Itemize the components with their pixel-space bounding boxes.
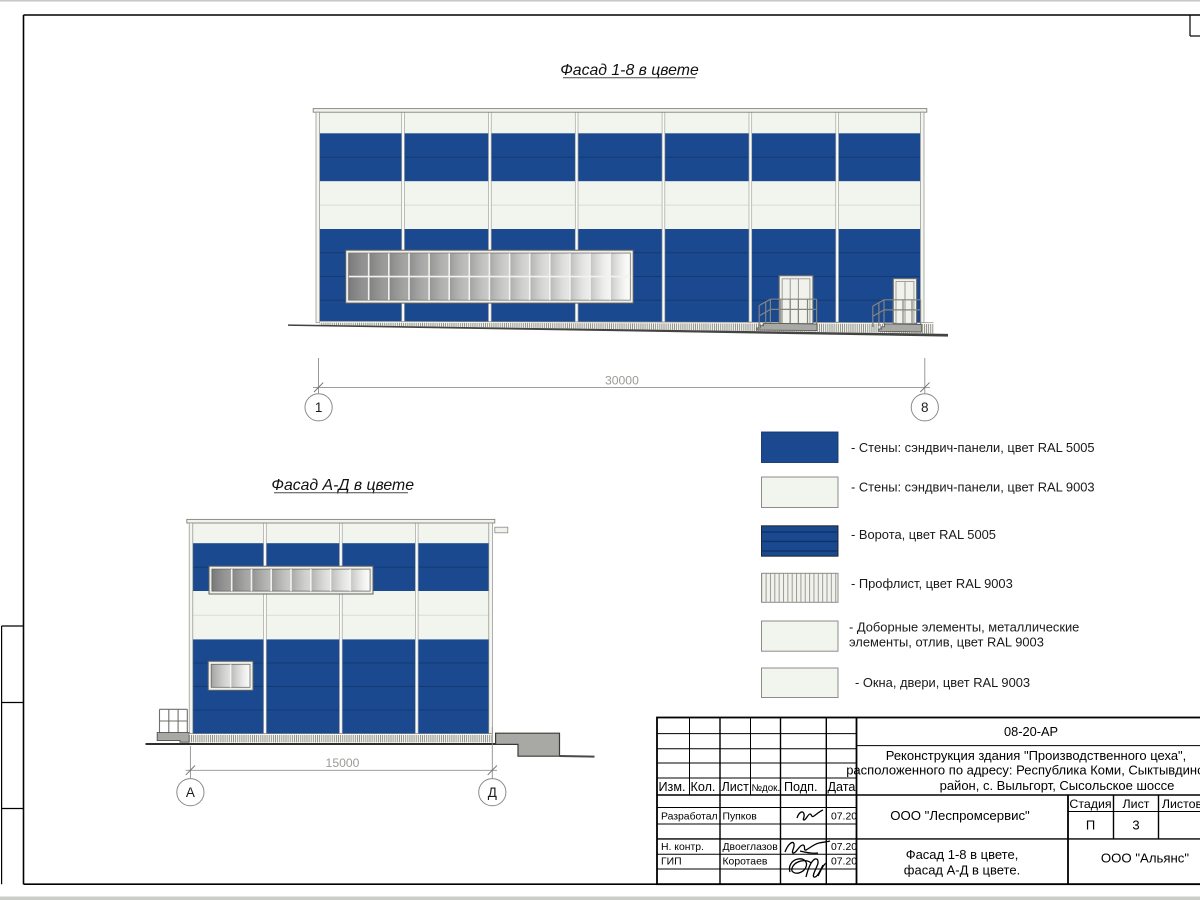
svg-text:Коротаев: Коротаев xyxy=(723,857,768,868)
svg-text:Пупков: Пупков xyxy=(723,811,758,822)
svg-text:30000: 30000 xyxy=(605,373,639,387)
svg-text:07.20: 07.20 xyxy=(831,857,857,868)
svg-text:Н. контр.: Н. контр. xyxy=(661,842,704,853)
svg-text:Кол.: Кол. xyxy=(691,780,716,794)
svg-text:- Окна, двери, цвет RAL 9003: - Окна, двери, цвет RAL 9003 xyxy=(855,675,1030,690)
svg-text:ООО "Леспромсервис": ООО "Леспромсервис" xyxy=(890,808,1030,823)
svg-text:Листов: Листов xyxy=(1162,797,1200,811)
svg-text:8: 8 xyxy=(921,400,929,415)
svg-text:07.20: 07.20 xyxy=(831,842,857,853)
svg-text:Фасад 1-8 в цвете: Фасад 1-8 в цвете xyxy=(560,62,699,79)
svg-text:ГИП: ГИП xyxy=(661,857,682,868)
svg-text:Изм.: Изм. xyxy=(659,780,686,794)
svg-text:- Профлист, цвет RAL 9003: - Профлист, цвет RAL 9003 xyxy=(851,576,1013,591)
svg-text:район, с. Выльгорт, Сысольское: район, с. Выльгорт, Сысольское шоссе xyxy=(940,778,1175,793)
svg-text:Д: Д xyxy=(488,785,497,800)
svg-text:- Стены: сэндвич-панели, цвет: - Стены: сэндвич-панели, цвет RAL 9003 xyxy=(851,480,1095,495)
svg-text:ООО "Альянс": ООО "Альянс" xyxy=(1101,851,1189,866)
svg-text:- Стены: сэндвич-панели, цвет: - Стены: сэндвич-панели, цвет RAL 5005 xyxy=(851,440,1095,455)
svg-text:элементы, отлив, цвет RAL 9003: элементы, отлив, цвет RAL 9003 xyxy=(849,635,1044,650)
svg-text:15000: 15000 xyxy=(326,756,360,770)
svg-text:1: 1 xyxy=(315,400,323,415)
svg-text:Стадия: Стадия xyxy=(1069,797,1111,811)
svg-text:фасад А-Д в цвете.: фасад А-Д в цвете. xyxy=(904,863,1020,878)
svg-text:А: А xyxy=(186,785,195,800)
svg-text:Фасад 1-8 в цвете,: Фасад 1-8 в цвете, xyxy=(906,847,1019,862)
svg-text:Разработал: Разработал xyxy=(661,810,718,822)
svg-text:Фасад А-Д в цвете: Фасад А-Д в цвете xyxy=(271,477,414,494)
svg-text:П: П xyxy=(1086,818,1095,833)
svg-text:- Доборные элементы, металличе: - Доборные элементы, металлические xyxy=(849,620,1079,635)
svg-text:- Ворота, цвет RAL 5005: - Ворота, цвет RAL 5005 xyxy=(851,527,996,542)
svg-text:Дата: Дата xyxy=(828,780,856,794)
svg-text:08-20-АР: 08-20-АР xyxy=(1004,724,1058,739)
svg-text:№док.: №док. xyxy=(752,783,781,794)
svg-text:Лист: Лист xyxy=(1123,797,1150,811)
svg-text:07.20: 07.20 xyxy=(831,811,857,822)
svg-text:3: 3 xyxy=(1132,818,1139,833)
svg-text:расположенного по адресу: Респ: расположенного по адресу: Республика Ком… xyxy=(846,763,1200,778)
svg-text:Двоеглазов: Двоеглазов xyxy=(723,842,779,853)
svg-text:Реконструкция здания "Производ: Реконструкция здания "Производственного … xyxy=(886,748,1187,763)
svg-text:Лист: Лист xyxy=(722,780,750,794)
svg-text:Подп.: Подп. xyxy=(784,780,817,794)
